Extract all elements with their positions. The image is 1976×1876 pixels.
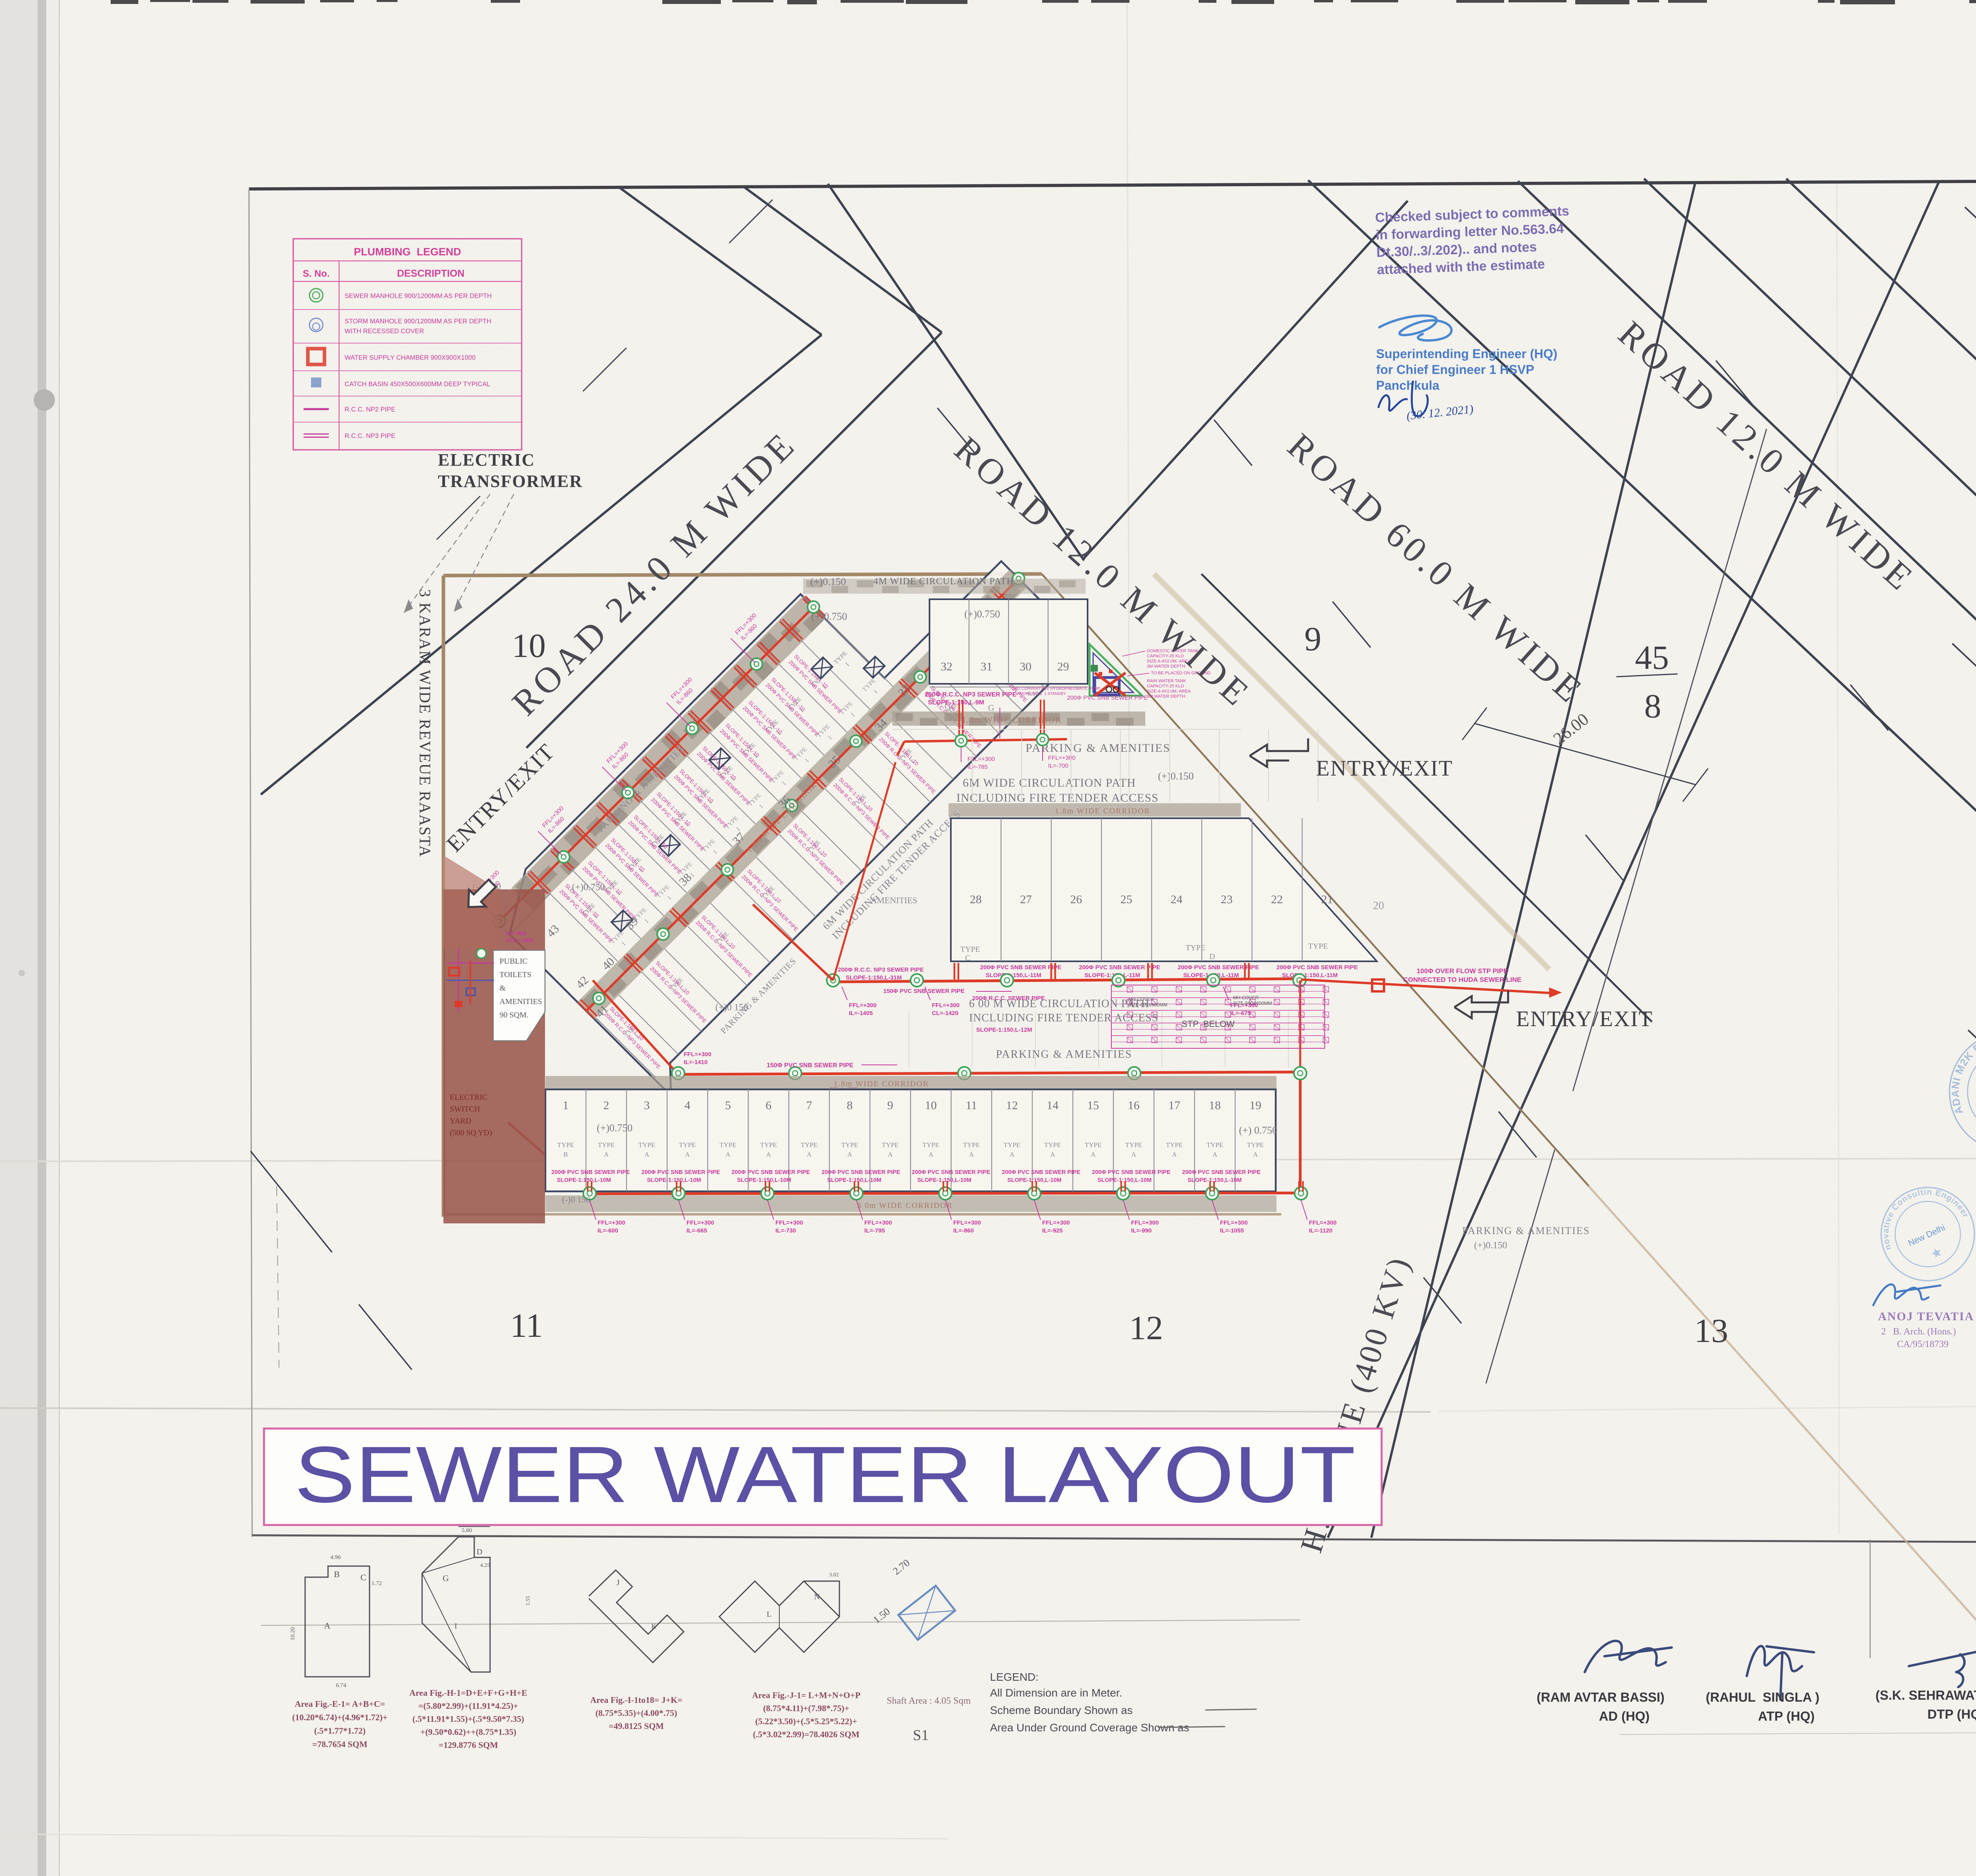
svg-text:3.02: 3.02 — [829, 1572, 839, 1578]
svg-text:TYPE: TYPE — [720, 1141, 737, 1149]
svg-text:A: A — [324, 1621, 330, 1631]
svg-text:200Φ R.C.C. NP3 SEWER PIPE: 200Φ R.C.C. NP3 SEWER PIPE — [838, 966, 924, 973]
svg-text:19: 19 — [1250, 1099, 1261, 1112]
svg-text:SLOPE-1:150,L-10M: SLOPE-1:150,L-10M — [737, 1177, 791, 1183]
svg-text:INCLUDING FIRE TENDER ACCESS: INCLUDING FIRE TENDER ACCESS — [956, 791, 1159, 804]
svg-text:Area Fig.-I-1to18= J+K=: Area Fig.-I-1to18= J+K= — [590, 1695, 682, 1705]
svg-text:ELECTRIC: ELECTRIC — [450, 1093, 488, 1102]
svg-text:C: C — [360, 1572, 366, 1582]
svg-text:90 SQM.: 90 SQM. — [500, 1011, 528, 1019]
svg-text:17: 17 — [1168, 1099, 1180, 1112]
svg-text:SLOPE-1:150,L-10M: SLOPE-1:150,L-10M — [917, 1177, 971, 1183]
svg-text:29: 29 — [1057, 660, 1069, 673]
svg-text:IL=-600: IL=-600 — [598, 1227, 618, 1234]
svg-text:PARKING & AMENITIES: PARKING & AMENITIES — [1462, 1225, 1590, 1236]
svg-text:7: 7 — [806, 1099, 812, 1112]
svg-text:J: J — [617, 1578, 620, 1587]
svg-text:200Φ PVC SNB SEWER PIPE: 200Φ PVC SNB SEWER PIPE — [1178, 964, 1259, 971]
svg-text:TRANSFORMER: TRANSFORMER — [438, 472, 583, 491]
svg-text:ANOJ TEVATIA: ANOJ TEVATIA — [1878, 1310, 1974, 1323]
svg-text:AMENITIES: AMENITIES — [871, 895, 918, 905]
svg-text:A: A — [1010, 1151, 1015, 1158]
svg-text:=(5.80*2.99)+(11.91*4.25)+: =(5.80*2.99)+(11.91*4.25)+ — [419, 1701, 519, 1711]
svg-text:IL=-1410: IL=-1410 — [684, 1059, 707, 1066]
svg-text:SLOPE-1:150,L-10M: SLOPE-1:150,L-10M — [557, 1177, 611, 1183]
svg-text:=49.8125 SQM: =49.8125 SQM — [609, 1721, 664, 1731]
svg-text:1.72: 1.72 — [371, 1580, 382, 1587]
svg-text:TYPE: TYPE — [801, 1141, 818, 1149]
svg-text:for Chief Engineer 1 HSVP: for Chief Engineer 1 HSVP — [1376, 362, 1534, 377]
svg-text:8: 8 — [1644, 687, 1661, 725]
svg-text:TYPE: TYPE — [598, 1141, 615, 1149]
svg-text:200Φ PVC SNB SEWER PIPE: 200Φ PVC SNB SEWER PIPE — [1067, 695, 1148, 701]
svg-text:8: 8 — [847, 1099, 853, 1112]
svg-text:Area Fig.-J-1= L+M+N+O+P: Area Fig.-J-1= L+M+N+O+P — [752, 1690, 860, 1700]
svg-text:R.C.C. NP2 PIPE: R.C.C. NP2 PIPE — [345, 406, 395, 413]
svg-text:PLUMBING LEGEND: PLUMBING LEGEND — [354, 246, 461, 258]
svg-text:A: A — [726, 1151, 731, 1158]
svg-text:12: 12 — [1129, 1309, 1163, 1347]
svg-text:FFL=+300: FFL=+300 — [849, 1002, 877, 1009]
svg-text:6: 6 — [766, 1099, 771, 1112]
svg-text:TYPE: TYPE — [963, 1141, 980, 1149]
svg-text:200Φ R.C.C. SEWER PIPE: 200Φ R.C.C. SEWER PIPE — [972, 995, 1045, 1002]
svg-text:(+)0.750: (+)0.750 — [964, 608, 1000, 620]
svg-text:TYPE: TYPE — [922, 1141, 939, 1149]
svg-text:(8.75*4.11)+(7.98*.75)+: (8.75*4.11)+(7.98*.75)+ — [763, 1703, 849, 1713]
svg-text:11: 11 — [510, 1306, 543, 1344]
svg-text:10: 10 — [925, 1099, 937, 1112]
svg-text:1.8m WIDE CORRIDOR: 1.8m WIDE CORRIDOR — [962, 715, 1062, 725]
svg-text:1 WORKING & 1 STANDBY: 1 WORKING & 1 STANDBY — [1016, 692, 1066, 696]
svg-text:24: 24 — [1171, 893, 1182, 906]
svg-text:TYPE: TYPE — [1247, 1141, 1264, 1149]
svg-text:28: 28 — [970, 893, 982, 906]
svg-text:FFL=+300: FFL=+300 — [1131, 1219, 1159, 1226]
svg-text:3 KARAM WIDE REVEUE RAASTA: 3 KARAM WIDE REVEUE RAASTA — [416, 589, 434, 857]
svg-text:A: A — [604, 1151, 609, 1158]
svg-text:2001 CONVERTIBLE HYDROPNEUMATI: 2001 CONVERTIBLE HYDROPNEUMATIC PUMP — [1012, 687, 1100, 691]
svg-text:N: N — [814, 1593, 820, 1601]
svg-text:FFL=+300: FFL=+300 — [1042, 1219, 1070, 1226]
svg-text:150Φ PVC SNB SEWER PIPE: 150Φ PVC SNB SEWER PIPE — [883, 988, 965, 995]
svg-text:TYPE: TYPE — [841, 1141, 858, 1149]
svg-text:DESCRIPTION: DESCRIPTION — [397, 268, 465, 279]
svg-text:TYPE: TYPE — [1207, 1141, 1224, 1149]
svg-text:21: 21 — [1321, 893, 1333, 906]
svg-text:10.20: 10.20 — [290, 1627, 296, 1640]
svg-text:FFL=+300: FFL=+300 — [686, 1219, 714, 1226]
svg-text:100Φ OVER FLOW STP PIPE: 100Φ OVER FLOW STP PIPE — [1417, 967, 1508, 975]
svg-text:A: A — [685, 1151, 690, 1158]
svg-text:AD (HQ): AD (HQ) — [1599, 1709, 1650, 1723]
svg-text:20: 20 — [1373, 900, 1384, 912]
svg-text:A: A — [847, 1151, 852, 1158]
svg-text:CL=-1420: CL=-1420 — [932, 1010, 958, 1017]
svg-text:200Φ PVC SNB SEWER PIPE: 200Φ PVC SNB SEWER PIPE — [641, 1169, 720, 1176]
svg-text:(.5*11.91*1.55)+(.5*9.50*7.35): (.5*11.91*1.55)+(.5*9.50*7.35) — [413, 1714, 524, 1724]
svg-text:ENTRY/EXIT: ENTRY/EXIT — [1516, 1007, 1653, 1031]
svg-text:A: A — [1212, 1151, 1218, 1158]
svg-text:AMENITIES: AMENITIES — [500, 997, 542, 1006]
svg-text:31: 31 — [980, 660, 992, 673]
svg-text:WITH RECESSED COVER: WITH RECESSED COVER — [345, 328, 424, 335]
svg-text:(10.20*6.74)+(4.96*1.72)+: (10.20*6.74)+(4.96*1.72)+ — [292, 1712, 387, 1722]
svg-text:STP BELOW: STP BELOW — [1182, 1019, 1235, 1029]
svg-text:FFL=+300: FFL=+300 — [775, 1219, 803, 1226]
svg-text:All Dimension are in Meter.: All Dimension are in Meter. — [990, 1687, 1122, 1699]
svg-text:TOILETS: TOILETS — [500, 970, 532, 979]
svg-text:A: A — [1253, 1151, 1258, 1158]
svg-text:IL=-1120: IL=-1120 — [1309, 1227, 1333, 1234]
svg-text:FFL=+300: FFL=+300 — [932, 1002, 960, 1009]
svg-text:FFL=+300: FFL=+300 — [953, 1219, 981, 1226]
svg-text:SEWER WATER LAYOUT: SEWER WATER LAYOUT — [294, 1430, 1356, 1519]
svg-text:A: A — [888, 1151, 893, 1158]
svg-text:A: A — [766, 1151, 771, 1158]
svg-text:12: 12 — [1006, 1099, 1018, 1112]
svg-text:27: 27 — [1020, 893, 1032, 906]
svg-text:A: A — [1131, 1151, 1137, 1158]
svg-text:4: 4 — [684, 1099, 690, 1112]
svg-text:ELECTRIC: ELECTRIC — [438, 450, 535, 470]
svg-text:=129.8776 SQM: =129.8776 SQM — [439, 1740, 498, 1750]
svg-text:FFL=+300: FFL=+300 — [506, 937, 534, 944]
svg-text:WATER SUPPLY CHAMBER 900X900X1: WATER SUPPLY CHAMBER 900X900X1000 — [345, 354, 475, 361]
svg-text:SEWER MANHOLE 900/1200MM AS PE: SEWER MANHOLE 900/1200MM AS PER DEPTH — [345, 293, 492, 300]
svg-text:SLOPE-1:150,L-10M: SLOPE-1:150,L-10M — [1007, 1177, 1062, 1183]
svg-text:3 0m WIDE CORRIDOR: 3 0m WIDE CORRIDOR — [857, 1201, 953, 1210]
svg-text:200Φ PVC SNB SEWER PIPE: 200Φ PVC SNB SEWER PIPE — [1182, 1169, 1261, 1176]
svg-text:TYPE: TYPE — [1186, 944, 1205, 952]
svg-text:TYPE: TYPE — [882, 1141, 899, 1149]
svg-text:(RAHUL SINGLA ): (RAHUL SINGLA ) — [1706, 1690, 1820, 1704]
svg-text:(+)0.750: (+)0.750 — [572, 882, 605, 893]
svg-text:IL=-1405: IL=-1405 — [849, 1010, 873, 1017]
svg-text:PUBLIC: PUBLIC — [500, 957, 528, 966]
svg-text:IL=-900: IL=-900 — [506, 930, 526, 937]
svg-text:200Φ PVC SNB SEWER PIPE: 200Φ PVC SNB SEWER PIPE — [551, 1169, 630, 1176]
svg-text:TYPE: TYPE — [1308, 942, 1328, 951]
svg-text:TYPE: TYPE — [960, 945, 980, 954]
svg-text:200Φ PVC SNB SEWER PIPE: 200Φ PVC SNB SEWER PIPE — [1276, 964, 1358, 971]
svg-text:6M WIDE CIRCULATION PATH: 6M WIDE CIRCULATION PATH — [963, 776, 1136, 789]
svg-text:(+)0.150: (+)0.150 — [1474, 1240, 1507, 1251]
svg-text:3: 3 — [644, 1099, 650, 1112]
svg-text:15: 15 — [1087, 1099, 1099, 1112]
svg-text:Scheme Boundary Shown as: Scheme Boundary Shown as — [990, 1704, 1133, 1716]
svg-text:Superintending Engineer (HQ): Superintending Engineer (HQ) — [1376, 347, 1557, 361]
svg-text:TYPE: TYPE — [1003, 1141, 1020, 1149]
svg-text:2: 2 — [603, 1099, 609, 1112]
svg-text:200Φ PVC SNB SEWER PIPE: 200Φ PVC SNB SEWER PIPE — [1002, 1169, 1080, 1176]
svg-text:FFL=+300: FFL=+300 — [1309, 1219, 1337, 1226]
svg-text:200Φ PVC SNB SEWER PIPE: 200Φ PVC SNB SEWER PIPE — [980, 964, 1062, 971]
svg-text:(S.K. SEHRAWAT ): (S.K. SEHRAWAT ) — [1875, 1688, 1976, 1702]
svg-text:SLOPE-1:150,L-9M: SLOPE-1:150,L-9M — [928, 699, 984, 706]
svg-text:STORM MANHOLE 900/1200MM AS PE: STORM MANHOLE 900/1200MM AS PER DEPTH — [345, 318, 491, 325]
svg-text:TYPE: TYPE — [1125, 1141, 1142, 1149]
svg-text:200Φ PVC SNB SEWER PIPE: 200Φ PVC SNB SEWER PIPE — [1092, 1169, 1171, 1176]
svg-text:TYPE: TYPE — [1085, 1141, 1102, 1149]
svg-text:10: 10 — [512, 627, 546, 664]
svg-text:R.C.C. NP3 PIPE: R.C.C. NP3 PIPE — [345, 432, 395, 440]
svg-text:A: A — [969, 1151, 974, 1158]
svg-text:30: 30 — [1020, 660, 1031, 673]
svg-text:PARKING & AMENITIES: PARKING & AMENITIES — [996, 1048, 1132, 1061]
svg-text:IL=-675: IL=-675 — [1230, 1010, 1251, 1017]
svg-text:ATP (HQ): ATP (HQ) — [1758, 1709, 1815, 1723]
svg-text:2 B. Arch. (Hons.): 2 B. Arch. (Hons.) — [1881, 1327, 1956, 1337]
svg-text:4.96: 4.96 — [330, 1554, 341, 1561]
svg-text:22: 22 — [1271, 893, 1283, 906]
svg-text:L: L — [767, 1610, 771, 1619]
svg-text:IL=-925: IL=-925 — [1042, 1227, 1063, 1234]
svg-text:(5.22*3.50)+(.5*5.25*5.22)+: (5.22*3.50)+(.5*5.25*5.22)+ — [755, 1716, 857, 1726]
svg-text:A: A — [807, 1151, 812, 1158]
svg-text:IL=-730: IL=-730 — [775, 1227, 796, 1234]
svg-text:(500 SQ YD): (500 SQ YD) — [450, 1129, 492, 1137]
svg-text:FFL=+300: FFL=+300 — [684, 1051, 711, 1058]
svg-text:9: 9 — [887, 1099, 893, 1112]
svg-text:14: 14 — [1046, 1099, 1058, 1112]
svg-text:ENTRY/EXIT: ENTRY/EXIT — [1316, 756, 1453, 781]
svg-text:IL=-785: IL=-785 — [967, 764, 988, 770]
svg-text:CONNECTED TO HUDA SEWER LINE: CONNECTED TO HUDA SEWER LINE — [1403, 976, 1521, 983]
svg-text:IL=-990: IL=-990 — [1131, 1227, 1152, 1234]
svg-text:SIZE-6.4X2.0M, AREA: SIZE-6.4X2.0M, AREA — [1147, 689, 1191, 694]
svg-text:4.25: 4.25 — [480, 1563, 490, 1568]
svg-text:INCLUDING FIRE TENDER ACCESS: INCLUDING FIRE TENDER ACCESS — [969, 1012, 1158, 1024]
svg-text:FFL=+300: FFL=+300 — [1220, 1219, 1248, 1226]
svg-text:A: A — [928, 1151, 933, 1158]
svg-text:32: 32 — [941, 660, 952, 673]
svg-text:D: D — [477, 1548, 482, 1556]
svg-text:IL=-860: IL=-860 — [953, 1227, 974, 1234]
svg-text:IL=-795: IL=-795 — [864, 1227, 885, 1234]
svg-text:1.55: 1.55 — [525, 1596, 531, 1606]
svg-text:Area Fig.-E-1= A+B+C=: Area Fig.-E-1= A+B+C= — [295, 1699, 385, 1709]
svg-text:5.80: 5.80 — [462, 1527, 472, 1534]
svg-text:D: D — [1209, 952, 1215, 961]
svg-text:SIZE-600X600MM: SIZE-600X600MM — [1233, 1000, 1272, 1006]
svg-text:(+)0.750: (+)0.750 — [597, 1122, 632, 1134]
svg-text:IL=-665: IL=-665 — [686, 1227, 707, 1234]
svg-text:IL=-1055: IL=-1055 — [1220, 1227, 1244, 1234]
svg-text:(+)0.750: (+)0.750 — [811, 611, 847, 622]
svg-text:A: A — [1172, 1151, 1177, 1158]
svg-text:I: I — [454, 1622, 457, 1631]
svg-text:Area Fig.-H-1=D+E+F+G+H+E: Area Fig.-H-1=D+E+F+G+H+E — [409, 1688, 527, 1698]
svg-text:(+) 0.750: (+) 0.750 — [1239, 1125, 1277, 1136]
svg-text:TYPE: TYPE — [1044, 1141, 1061, 1149]
svg-text:200Φ PVC SNB SEWER PIPE: 200Φ PVC SNB SEWER PIPE — [822, 1169, 900, 1176]
svg-text:G: G — [443, 1573, 449, 1583]
svg-text:200Φ R.C.C. NP3 SEWER PIPE: 200Φ R.C.C. NP3 SEWER PIPE — [925, 691, 1016, 698]
svg-text:25: 25 — [1120, 893, 1132, 906]
svg-text:TYPE: TYPE — [679, 1141, 696, 1149]
svg-text:6.74: 6.74 — [336, 1682, 347, 1689]
svg-text:S1: S1 — [913, 1727, 929, 1744]
svg-text:1: 1 — [563, 1099, 569, 1112]
svg-text:(RAM AVTAR BASSI): (RAM AVTAR BASSI) — [1537, 1690, 1665, 1704]
svg-text:DTP (HQ): DTP (HQ) — [1927, 1707, 1976, 1721]
svg-text:TYPE: TYPE — [1166, 1141, 1183, 1149]
svg-text:16: 16 — [1128, 1099, 1140, 1112]
svg-text:5: 5 — [725, 1099, 731, 1112]
svg-text:A: A — [645, 1151, 650, 1158]
svg-text:(.5*1.77*1.72): (.5*1.77*1.72) — [314, 1726, 366, 1736]
svg-text:Panchkula: Panchkula — [1376, 378, 1439, 393]
svg-text:3M WATER DEPTH: 3M WATER DEPTH — [1147, 694, 1185, 699]
svg-text:YARD: YARD — [450, 1117, 471, 1125]
svg-text:200Φ PVC SNB SEWER PIPE: 200Φ PVC SNB SEWER PIPE — [912, 1169, 990, 1176]
svg-text:&: & — [500, 984, 506, 993]
svg-text:1.8m WIDE CORRIDOR: 1.8m WIDE CORRIDOR — [833, 1080, 929, 1088]
svg-text:9: 9 — [1305, 620, 1322, 658]
svg-text:B: B — [564, 1151, 568, 1158]
svg-text:IL=-700: IL=-700 — [1048, 762, 1068, 769]
svg-text:CATCH BASIN 450X500X600MM DEEP: CATCH BASIN 450X500X600MM DEEP TYPICAL — [345, 381, 490, 388]
svg-text:SLOPE-1:150,L-12M: SLOPE-1:150,L-12M — [976, 1027, 1032, 1033]
svg-text:K: K — [651, 1622, 656, 1630]
svg-text:(8.75*5.35)+(4.00*.75): (8.75*5.35)+(4.00*.75) — [596, 1708, 677, 1718]
svg-text:13: 13 — [1694, 1312, 1728, 1349]
svg-text:200Φ PVC SNB SEWER PIPE: 200Φ PVC SNB SEWER PIPE — [732, 1169, 810, 1176]
svg-text:TYPE: TYPE — [760, 1141, 777, 1149]
svg-text:(+)0.150: (+)0.150 — [1158, 770, 1194, 782]
svg-text:23: 23 — [1221, 893, 1233, 906]
svg-text:CAPACITY-25 KLD: CAPACITY-25 KLD — [1147, 684, 1184, 689]
svg-text:TYPE: TYPE — [557, 1141, 574, 1149]
svg-text:+(9.50*0.62)++(8.75*1.35): +(9.50*0.62)++(8.75*1.35) — [420, 1727, 517, 1737]
svg-text:C: C — [965, 954, 970, 963]
svg-text:11: 11 — [966, 1099, 977, 1112]
svg-text:MH COVER: MH COVER — [1233, 995, 1259, 1000]
svg-text:=78.7654 SQM: =78.7654 SQM — [312, 1739, 368, 1749]
svg-text:(+)0.150: (+)0.150 — [810, 576, 846, 587]
svg-text:150Φ PVC SNB SEWER PIPE: 150Φ PVC SNB SEWER PIPE — [767, 1062, 854, 1069]
svg-text:A: A — [1050, 1151, 1055, 1158]
svg-text:TYPE: TYPE — [638, 1141, 655, 1149]
svg-text:CA/95/18739: CA/95/18739 — [1897, 1339, 1949, 1349]
svg-text:G: G — [988, 703, 994, 713]
svg-text:45: 45 — [1635, 638, 1669, 676]
svg-text:S. No.: S. No. — [303, 268, 330, 279]
svg-text:SWITCH: SWITCH — [450, 1105, 480, 1114]
svg-text:18: 18 — [1209, 1099, 1221, 1112]
svg-text:4M WIDE CIRCULATION PATH: 4M WIDE CIRCULATION PATH — [873, 576, 1014, 587]
svg-text:(+)0 150: (+)0 150 — [715, 1002, 749, 1013]
svg-text:LEGEND:: LEGEND: — [990, 1671, 1039, 1683]
svg-text:SLOPE-1:150,L-10M: SLOPE-1:150,L-10M — [647, 1177, 701, 1183]
svg-text:(.5*3.02*2.99)=78.4026 SQM: (.5*3.02*2.99)=78.4026 SQM — [753, 1729, 860, 1739]
svg-text:1.8m WIDE CORRIDOR: 1.8m WIDE CORRIDOR — [1055, 807, 1150, 815]
svg-text:A: A — [1091, 1151, 1096, 1158]
svg-text:FFL=+300: FFL=+300 — [864, 1219, 892, 1226]
svg-text:FFL=+300: FFL=+300 — [598, 1219, 625, 1226]
svg-text:FFL=+300: FFL=+300 — [967, 756, 995, 762]
svg-text:B: B — [334, 1569, 340, 1579]
svg-text:(-)0 150: (-)0 150 — [562, 1195, 590, 1204]
svg-text:RAIN WATER TANK: RAIN WATER TANK — [1147, 679, 1186, 683]
svg-text:26: 26 — [1070, 893, 1082, 906]
svg-text:Shaft Area : 4.05 Sqm: Shaft Area : 4.05 Sqm — [887, 1696, 971, 1706]
